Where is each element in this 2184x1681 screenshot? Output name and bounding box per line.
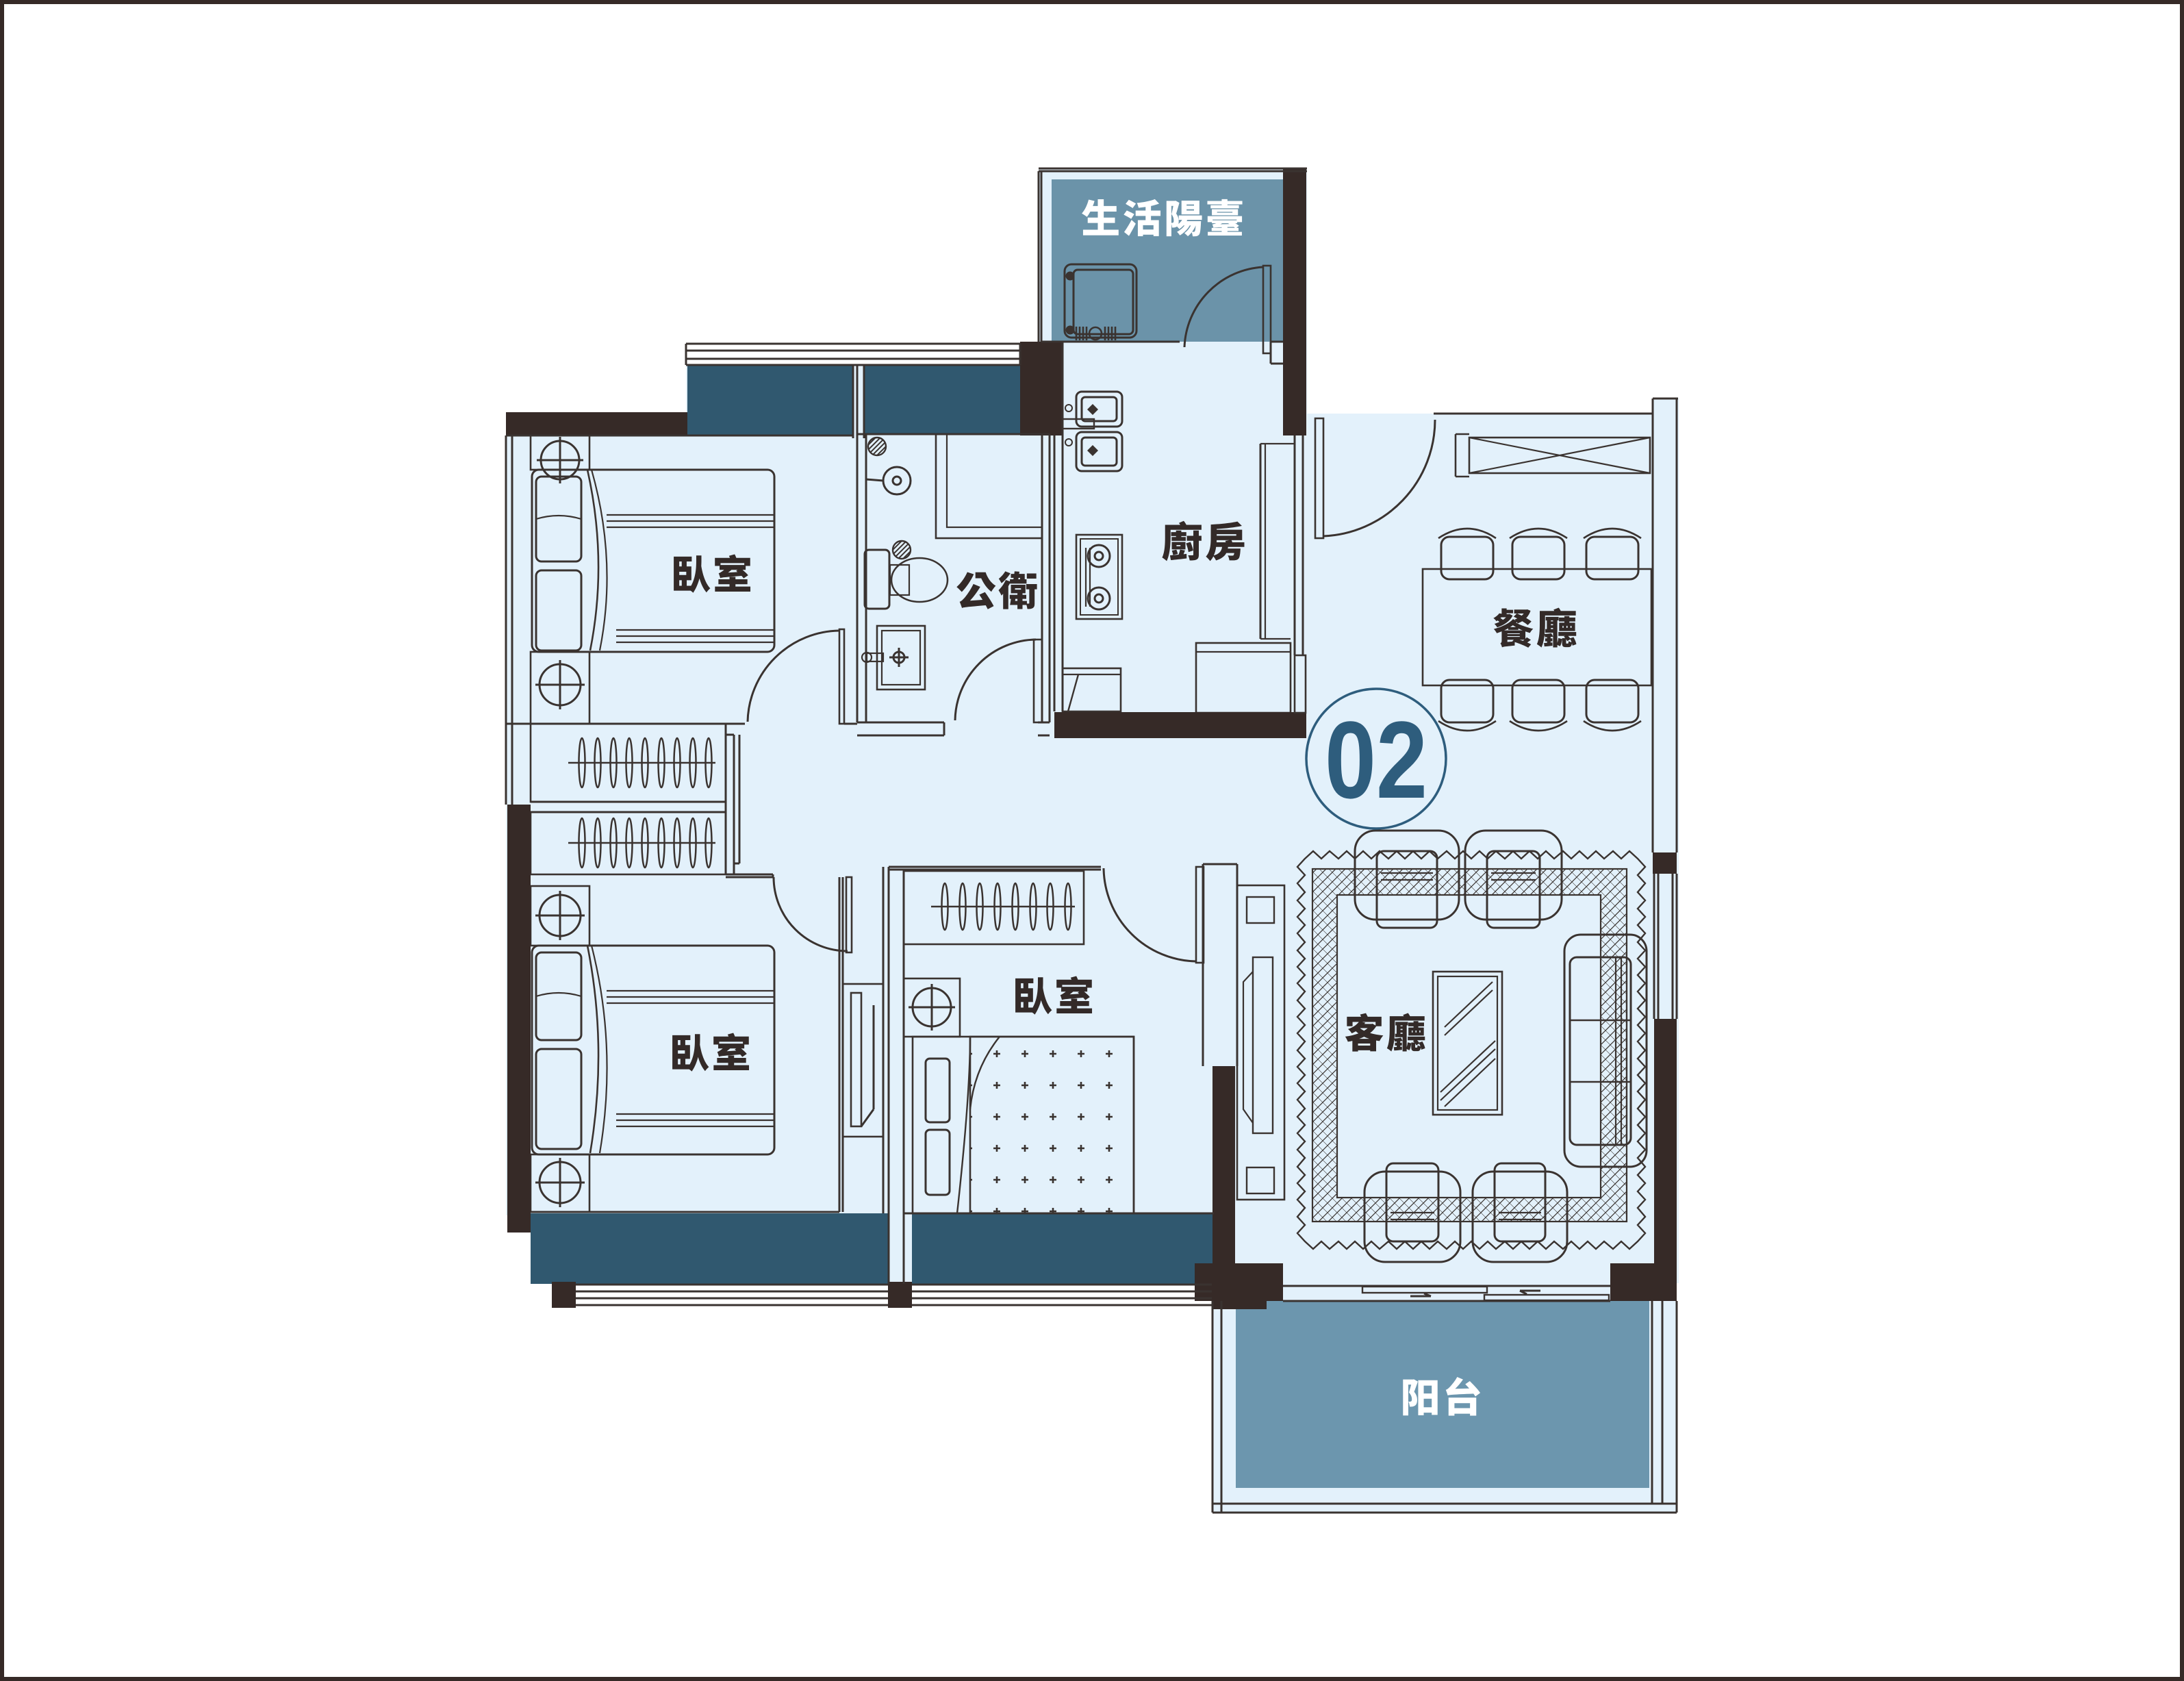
svg-text:02: 02: [1325, 698, 1427, 821]
